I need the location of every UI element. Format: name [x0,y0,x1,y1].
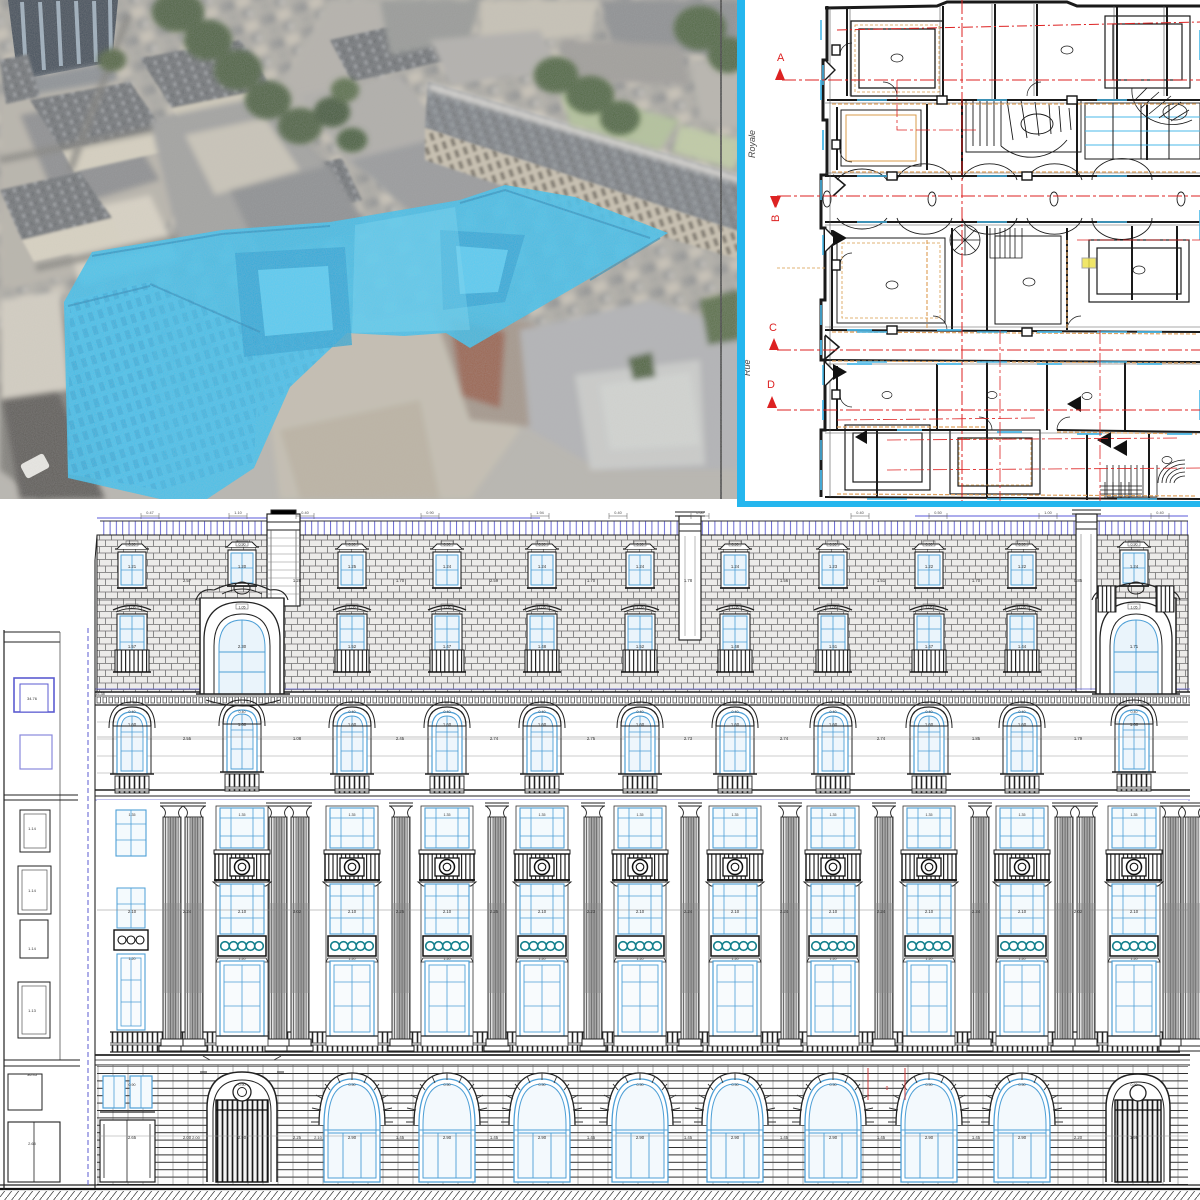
svg-text:1.20: 1.20 [732,957,739,961]
svg-text:0.90: 0.90 [830,543,837,547]
svg-text:1.70: 1.70 [587,578,596,583]
svg-text:1.52: 1.52 [348,644,357,649]
svg-text:2.90: 2.90 [731,1135,740,1140]
svg-text:0.47: 0.47 [146,511,153,515]
svg-text:2.10: 2.10 [348,909,357,914]
svg-text:1.70: 1.70 [396,578,405,583]
svg-text:1.60: 1.60 [238,722,247,727]
svg-text:1.05: 1.05 [637,606,644,610]
svg-text:2.00: 2.00 [192,1135,201,1140]
svg-text:0.60: 0.60 [696,511,703,515]
svg-text:1.00: 1.00 [1044,511,1051,515]
svg-text:1.94: 1.94 [536,511,543,515]
svg-text:0.90: 0.90 [444,1083,451,1087]
svg-text:1.44: 1.44 [1018,644,1027,649]
svg-text:2.20: 2.20 [1074,1135,1083,1140]
svg-text:0.90: 0.90 [732,543,739,547]
svg-text:1.45: 1.45 [684,1135,693,1140]
svg-text:2.90: 2.90 [636,1135,645,1140]
svg-text:1.60: 1.60 [348,722,357,727]
svg-text:1.20: 1.20 [1131,957,1138,961]
svg-text:1.24: 1.24 [636,564,645,569]
svg-text:0.85: 0.85 [1074,578,1083,583]
svg-text:1.78: 1.78 [684,578,693,583]
svg-text:1.35: 1.35 [830,813,837,817]
svg-text:2.10: 2.10 [238,909,247,914]
svg-text:0.40: 0.40 [1131,710,1138,714]
svg-text:1.35: 1.35 [349,813,356,817]
svg-text:1.60: 1.60 [1130,722,1139,727]
svg-text:2.10: 2.10 [636,909,645,914]
svg-text:2.00: 2.00 [183,1135,192,1140]
svg-text:2.25: 2.25 [293,1135,302,1140]
svg-text:2.24: 2.24 [780,909,789,914]
svg-text:C: C [769,322,777,334]
svg-text:1.23: 1.23 [829,564,838,569]
svg-text:1.60: 1.60 [636,722,645,727]
svg-text:1.20: 1.20 [830,957,837,961]
svg-text:2.90: 2.90 [538,1135,547,1140]
svg-text:3.02: 3.02 [293,909,302,914]
svg-text:1.08: 1.08 [293,736,302,741]
svg-text:2.10: 2.10 [829,909,838,914]
svg-text:1.24: 1.24 [443,564,452,569]
svg-text:0.90: 0.90 [444,543,451,547]
svg-text:2.90: 2.90 [1018,1135,1027,1140]
svg-text:1.14: 1.14 [28,946,37,951]
svg-text:0.90: 0.90 [926,543,933,547]
svg-text:1.52: 1.52 [636,644,645,649]
svg-text:1.60: 1.60 [829,722,838,727]
svg-text:0.90: 0.90 [129,1083,136,1087]
svg-text:2.45: 2.45 [396,736,405,741]
svg-text:1.35: 1.35 [1131,813,1138,817]
svg-text:2.74: 2.74 [877,736,886,741]
svg-text:1.45: 1.45 [780,1135,789,1140]
svg-text:2.10: 2.10 [1130,909,1139,914]
svg-text:2.24: 2.24 [972,909,981,914]
svg-text:1.05: 1.05 [539,606,546,610]
svg-text:0.90: 0.90 [1131,1083,1138,1087]
svg-text:1.14: 1.14 [28,826,37,831]
svg-text:2.10: 2.10 [1018,909,1027,914]
svg-text:1.35: 1.35 [444,813,451,817]
svg-text:1.35: 1.35 [129,813,136,817]
svg-text:2.90: 2.90 [443,1135,452,1140]
svg-text:0.40: 0.40 [129,710,136,714]
svg-text:1.45: 1.45 [877,1135,886,1140]
svg-text:0.90: 0.90 [349,543,356,547]
svg-text:1.05: 1.05 [444,606,451,610]
svg-text:2.65: 2.65 [128,1135,137,1140]
svg-text:1.57: 1.57 [128,644,137,649]
svg-text:0.90: 0.90 [637,1083,644,1087]
svg-text:1.47: 1.47 [925,644,934,649]
svg-text:1.35: 1.35 [1019,813,1026,817]
svg-text:1.35: 1.35 [732,813,739,817]
svg-text:1.05: 1.05 [732,606,739,610]
svg-text:1.35: 1.35 [637,813,644,817]
svg-text:1.05: 1.05 [129,606,136,610]
svg-text:0.90: 0.90 [426,511,433,515]
svg-text:1.05: 1.05 [926,606,933,610]
svg-text:1.20: 1.20 [349,957,356,961]
svg-text:2.24: 2.24 [684,909,693,914]
svg-text:1.45: 1.45 [396,1135,405,1140]
svg-text:1.20: 1.20 [129,957,136,961]
svg-text:1.22: 1.22 [1018,564,1027,569]
svg-text:1.79: 1.79 [1074,736,1083,741]
svg-text:2.65: 2.65 [28,1141,37,1146]
svg-text:0.40: 0.40 [1019,710,1026,714]
svg-text:2.90: 2.90 [829,1135,838,1140]
svg-text:1.20: 1.20 [239,957,246,961]
svg-text:1.24: 1.24 [1130,564,1139,569]
svg-text:1.05: 1.05 [239,606,246,610]
svg-text:0.90: 0.90 [239,543,246,547]
svg-text:0.90: 0.90 [129,543,136,547]
svg-text:0.40: 0.40 [444,710,451,714]
svg-text:1.22: 1.22 [925,564,934,569]
svg-text:9: 9 [886,1086,889,1092]
svg-text:2.30: 2.30 [238,644,247,649]
svg-text:34.76: 34.76 [27,696,38,701]
svg-text:0.40: 0.40 [830,710,837,714]
svg-text:2.24: 2.24 [183,909,192,914]
svg-text:2.10: 2.10 [925,909,934,914]
svg-text:1.24: 1.24 [538,564,547,569]
svg-text:1.05: 1.05 [1131,606,1138,610]
svg-text:2.10: 2.10 [538,909,547,914]
svg-text:2.90: 2.90 [238,1135,247,1140]
svg-text:1.13: 1.13 [28,1008,37,1013]
svg-text:2.24: 2.24 [877,909,886,914]
svg-text:1.14: 1.14 [28,888,37,893]
svg-text:0.40: 0.40 [1156,511,1163,515]
svg-text:2.90: 2.90 [925,1135,934,1140]
svg-text:1.20: 1.20 [637,957,644,961]
svg-text:1.70: 1.70 [972,578,981,583]
svg-text:0.40: 0.40 [637,710,644,714]
svg-text:0.90: 0.90 [539,543,546,547]
svg-text:1.60: 1.60 [1018,722,1027,727]
svg-text:0.90: 0.90 [732,1083,739,1087]
svg-text:1.45: 1.45 [972,1135,981,1140]
svg-text:1.45: 1.45 [587,1135,596,1140]
svg-text:2.10: 2.10 [731,909,740,914]
svg-text:1.45: 1.45 [490,1135,499,1140]
svg-text:2.10: 2.10 [443,909,452,914]
svg-text:1.05: 1.05 [349,606,356,610]
svg-text:1.60: 1.60 [128,722,137,727]
svg-text:1.20: 1.20 [238,564,247,569]
svg-text:0.90: 0.90 [239,1083,246,1087]
svg-text:0.90: 0.90 [637,543,644,547]
svg-text:0.40: 0.40 [732,710,739,714]
svg-text:A: A [777,52,785,64]
svg-text:0.40: 0.40 [539,710,546,714]
svg-text:2.75: 2.75 [587,736,596,741]
svg-text:1.21: 1.21 [128,564,137,569]
svg-text:2.25: 2.25 [396,909,405,914]
svg-text:B: B [770,215,782,222]
svg-text:2.23: 2.23 [587,909,596,914]
svg-text:1.51: 1.51 [877,578,886,583]
svg-text:1.47: 1.47 [443,644,452,649]
svg-text:2.73: 2.73 [684,736,693,741]
svg-text:1.35: 1.35 [926,813,933,817]
svg-text:1.20: 1.20 [926,957,933,961]
svg-text:1.24: 1.24 [731,564,740,569]
svg-text:0.50: 0.50 [934,511,941,515]
svg-text:1.60: 1.60 [925,722,934,727]
svg-text:0.40: 0.40 [926,710,933,714]
svg-text:0.40: 0.40 [239,710,246,714]
svg-text:0.90: 0.90 [1019,1083,1026,1087]
svg-text:D: D [767,379,775,391]
svg-text:1.48: 1.48 [731,644,740,649]
svg-text:2.10: 2.10 [128,909,137,914]
svg-text:1.05: 1.05 [1019,606,1026,610]
svg-text:1.20: 1.20 [1019,957,1026,961]
svg-text:0.90: 0.90 [539,1083,546,1087]
svg-text:1.10: 1.10 [234,511,241,515]
svg-text:36.45: 36.45 [27,1072,38,1077]
svg-text:1.20: 1.20 [444,957,451,961]
svg-text:1.51: 1.51 [829,644,838,649]
svg-text:Royale: Royale [747,130,757,158]
svg-text:1.20: 1.20 [539,957,546,961]
svg-text:1.98: 1.98 [1130,1135,1139,1140]
svg-text:2.59: 2.59 [490,578,499,583]
svg-text:2.74: 2.74 [490,736,499,741]
svg-text:1.56: 1.56 [780,578,789,583]
svg-text:2.74: 2.74 [780,736,789,741]
svg-text:1.71: 1.71 [1130,644,1139,649]
svg-text:2.25: 2.25 [490,909,499,914]
svg-text:0.40: 0.40 [301,511,308,515]
svg-text:1.28: 1.28 [293,578,302,583]
svg-text:1.05: 1.05 [830,606,837,610]
svg-text:0.90: 0.90 [1131,543,1138,547]
svg-text:0.90: 0.90 [349,1083,356,1087]
svg-text:1.85: 1.85 [972,736,981,741]
svg-text:1.60: 1.60 [538,722,547,727]
svg-text:1.48: 1.48 [538,644,547,649]
svg-text:2.10: 2.10 [314,1135,323,1140]
svg-text:1.60: 1.60 [443,722,452,727]
svg-text:1.35: 1.35 [239,813,246,817]
svg-text:2.90: 2.90 [348,1135,357,1140]
svg-text:0.40: 0.40 [349,710,356,714]
svg-text:0.40: 0.40 [856,511,863,515]
svg-text:0.90: 0.90 [830,1083,837,1087]
svg-text:0.90: 0.90 [1019,543,1026,547]
svg-text:16.38: 16.38 [95,692,105,696]
svg-text:2.02: 2.02 [1074,909,1083,914]
svg-text:1.35: 1.35 [539,813,546,817]
svg-text:2.57: 2.57 [183,578,192,583]
svg-text:0.40: 0.40 [614,511,621,515]
svg-text:1.60: 1.60 [731,722,740,727]
svg-text:1.25: 1.25 [348,564,357,569]
svg-text:2.55: 2.55 [183,736,192,741]
svg-text:0.90: 0.90 [926,1083,933,1087]
